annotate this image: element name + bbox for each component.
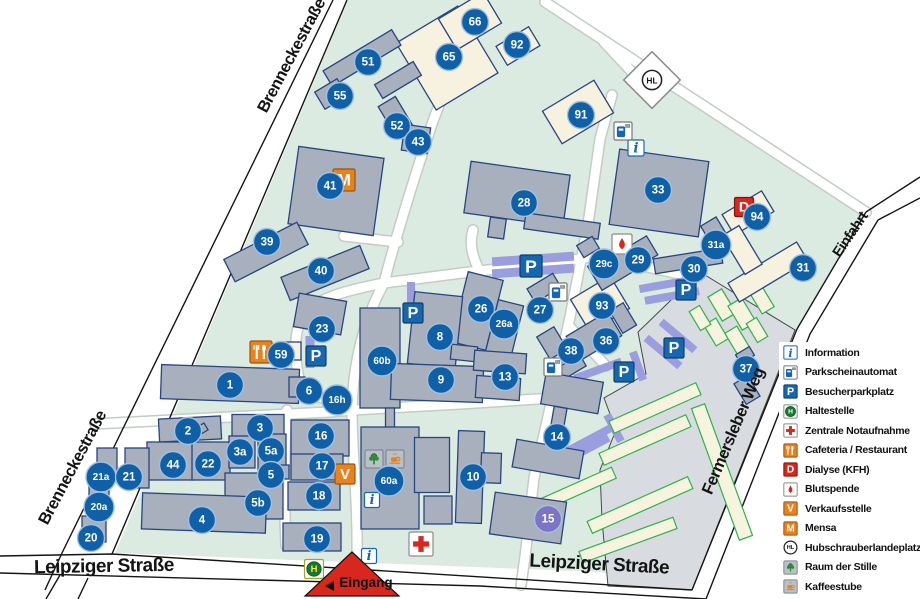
building-marker-26a: 26a [489, 309, 519, 339]
svg-text:HL: HL [787, 545, 795, 551]
svg-text:i: i [370, 493, 375, 508]
building-marker-17: 17 [309, 453, 336, 480]
svg-text:93: 93 [596, 301, 609, 313]
building-marker-5b: 5b [245, 490, 272, 517]
entrance-label: Eingang [339, 575, 392, 590]
legend-item-label: Mensa [805, 522, 836, 534]
building-marker-18: 18 [306, 483, 333, 510]
building-marker-10: 10 [460, 464, 487, 491]
svg-text:6: 6 [306, 386, 312, 398]
legend-item-label: Cafeteria / Restaurant [805, 444, 907, 456]
legend-item-verkaufsstelle: VVerkaufsstelle [783, 500, 920, 517]
cafeteria-icon [784, 443, 797, 456]
building-marker-20a: 20a [84, 492, 114, 522]
svg-text:26: 26 [475, 304, 488, 316]
svg-text:13: 13 [499, 372, 512, 384]
svg-text:21: 21 [123, 472, 136, 484]
building-marker-94: 94 [744, 204, 771, 231]
legend-item-information: iInformation [783, 344, 920, 361]
svg-text:51: 51 [362, 57, 375, 69]
legend-item-notaufnahme: Zentrale Notaufnahme [783, 422, 920, 439]
building-marker-39: 39 [254, 229, 281, 256]
building-marker-21a: 21a [86, 462, 116, 492]
svg-text:39: 39 [261, 237, 274, 249]
svg-text:18: 18 [313, 491, 326, 503]
besucherparkplatz-icon: P [784, 385, 797, 398]
building-marker-29: 29 [625, 247, 652, 274]
legend-panel: iInformationParkscheinautomatPBesucherpa… [779, 342, 920, 597]
raum-der-stille-icon [365, 450, 383, 468]
svg-text:D: D [787, 464, 794, 475]
svg-text:65: 65 [443, 52, 456, 64]
legend-item-label: Dialyse (KFH) [805, 464, 869, 476]
building-marker-29c: 29c [589, 249, 619, 279]
legend-item-label: Kaffeestube [805, 581, 862, 593]
svg-text:43: 43 [412, 137, 425, 149]
svg-text:28: 28 [518, 198, 531, 210]
legend-item-label: Verkaufsstelle [805, 503, 871, 515]
street-label: Leipziger Straße [34, 555, 174, 578]
mensa-icon: M [784, 521, 797, 534]
svg-text:17: 17 [316, 461, 329, 473]
svg-text:31a: 31a [708, 240, 725, 251]
svg-text:5: 5 [268, 470, 275, 482]
svg-text:92: 92 [511, 40, 524, 52]
cafeteria-icon [783, 443, 798, 458]
svg-text:20a: 20a [91, 502, 108, 513]
building-marker-8: 8 [427, 324, 454, 351]
svg-text:H: H [788, 408, 793, 415]
svg-text:2: 2 [185, 426, 191, 438]
building-marker-27: 27 [527, 297, 554, 324]
building-marker-31: 31 [790, 255, 817, 282]
building-marker-4: 4 [189, 507, 216, 534]
svg-text:3: 3 [257, 423, 263, 435]
legend-item-besucherparkplatz: PBesucherparkplatz [783, 383, 920, 400]
building-marker-15: 15 [535, 506, 562, 533]
svg-text:HL: HL [646, 76, 657, 86]
legend-item-hubschrauberlandeplatz: HLHubschrauberlandeplatz [783, 539, 920, 556]
information-icon: i [362, 549, 377, 564]
information-icon: i [784, 346, 797, 360]
building-marker-6: 6 [296, 378, 323, 405]
svg-text:i: i [788, 346, 792, 360]
svg-text:9: 9 [438, 375, 444, 387]
svg-text:29: 29 [632, 255, 645, 267]
building-marker-40: 40 [308, 258, 335, 285]
svg-text:29c: 29c [596, 259, 613, 270]
svg-text:V: V [787, 503, 794, 514]
besucherparkplatz-icon: P [783, 384, 798, 399]
svg-text:21a: 21a [93, 472, 110, 483]
building-marker-1: 1 [217, 372, 244, 399]
building-marker-60b: 60b [367, 346, 397, 376]
notaufnahme-icon [409, 532, 433, 556]
building-marker-2: 2 [175, 418, 202, 445]
svg-text:36: 36 [600, 336, 613, 348]
svg-text:60b: 60b [373, 356, 390, 367]
svg-text:5b: 5b [251, 498, 264, 510]
building-marker-92: 92 [504, 32, 531, 59]
building-marker-28: 28 [511, 190, 538, 217]
legend-item-label: Haltestelle [805, 405, 854, 417]
legend-item-haltestelle: HHaltestelle [783, 403, 920, 420]
dialyse-icon: D [783, 462, 798, 477]
svg-text:16h: 16h [328, 395, 345, 406]
svg-text:20: 20 [85, 533, 98, 545]
hubschrauberlandeplatz-icon: HL [642, 70, 661, 89]
building-marker-30: 30 [681, 256, 708, 283]
svg-text:P: P [669, 340, 680, 357]
raum-der-stille-icon [783, 560, 798, 575]
building-marker-22: 22 [195, 451, 222, 478]
building-marker-36: 36 [593, 328, 620, 355]
building-marker-55: 55 [327, 83, 354, 110]
besucherparkplatz-icon: P [520, 255, 542, 277]
svg-text:23: 23 [316, 324, 329, 336]
svg-text:19: 19 [311, 534, 324, 546]
svg-text:60a: 60a [381, 476, 398, 487]
information-icon: i [628, 140, 644, 156]
building-marker-93: 93 [589, 293, 616, 320]
building-marker-16: 16 [308, 423, 335, 450]
building-marker-91: 91 [568, 102, 595, 129]
hubschrauberlandeplatz-icon: HL [783, 540, 798, 555]
parkscheinautomat-icon [784, 365, 797, 378]
svg-text:38: 38 [565, 346, 578, 358]
building-marker-44: 44 [160, 452, 187, 479]
svg-text:P: P [525, 257, 537, 277]
legend-item-kaffeestube: Kaffeestube [783, 578, 920, 595]
blutspende-icon [783, 482, 798, 497]
svg-text:10: 10 [467, 472, 480, 484]
svg-text:44: 44 [167, 460, 180, 472]
kaffeestube-icon [783, 579, 798, 594]
legend-item-label: Blutspende [805, 483, 859, 495]
building-marker-65: 65 [436, 44, 463, 71]
building-marker-33: 33 [645, 177, 672, 204]
parkscheinautomat-icon [783, 365, 798, 380]
besucherparkplatz-icon: P [403, 303, 423, 323]
campus-map: MDVHHLiiiPPPPPP6692655155524391412833943… [0, 0, 920, 599]
svg-text:P: P [681, 282, 692, 299]
building-marker-14: 14 [544, 424, 571, 451]
building-shape [415, 438, 450, 493]
svg-text:59: 59 [275, 350, 288, 362]
legend-item-label: Hubschrauberlandeplatz [805, 542, 920, 554]
svg-text:P: P [311, 348, 322, 365]
legend-item-parkscheinautomat: Parkscheinautomat [783, 364, 920, 381]
legend-item-label: Zentrale Notaufnahme [805, 425, 910, 437]
legend-item-label: Raum der Stille [805, 561, 877, 573]
blutspende-icon [784, 482, 797, 495]
haltestelle-icon: H [784, 404, 797, 417]
building-marker-13: 13 [492, 364, 519, 391]
building-marker-51: 51 [355, 49, 382, 76]
information-icon: i [783, 345, 798, 360]
raum-der-stille-icon [784, 560, 797, 573]
svg-text:31: 31 [797, 263, 810, 275]
legend-item-raum-der-stille: Raum der Stille [783, 559, 920, 576]
svg-text:3a: 3a [234, 447, 247, 459]
kaffeestube-icon [386, 450, 404, 468]
building-marker-16h: 16h [322, 385, 352, 415]
svg-text:1: 1 [227, 380, 234, 392]
parkscheinautomat-icon [544, 358, 562, 376]
building-marker-60a: 60a [374, 466, 404, 496]
building-marker-31a: 31a [701, 230, 731, 260]
svg-text:5a: 5a [265, 446, 278, 458]
parkscheinautomat-icon [614, 122, 632, 140]
svg-text:4: 4 [199, 515, 206, 527]
besucherparkplatz-icon: P [306, 346, 326, 366]
building-marker-5: 5 [258, 462, 285, 489]
haltestelle-icon: H [305, 560, 324, 579]
verkaufsstelle-icon: V [784, 502, 797, 515]
notaufnahme-icon [783, 423, 798, 438]
svg-text:15: 15 [542, 514, 555, 526]
svg-text:66: 66 [469, 17, 482, 29]
svg-text:94: 94 [751, 212, 764, 224]
svg-text:55: 55 [334, 91, 347, 103]
verkaufsstelle-icon: V [335, 464, 355, 484]
information-icon: i [365, 493, 380, 508]
svg-text:i: i [633, 140, 638, 156]
svg-text:41: 41 [324, 181, 337, 193]
building-marker-43: 43 [405, 129, 432, 156]
svg-text:40: 40 [315, 266, 328, 278]
building-marker-38: 38 [558, 338, 585, 365]
haltestelle-icon: H [783, 404, 798, 419]
hubschrauberlandeplatz-icon: HL [784, 541, 797, 554]
mensa-icon: M [783, 521, 798, 536]
building-marker-21: 21 [116, 464, 143, 491]
building-marker-59: 59 [268, 342, 295, 369]
building-marker-19: 19 [304, 526, 331, 553]
svg-text:V: V [340, 466, 350, 483]
legend-item-cafeteria: Cafeteria / Restaurant [783, 442, 920, 459]
besucherparkplatz-icon: P [614, 362, 634, 382]
svg-text:52: 52 [391, 121, 404, 133]
svg-text:22: 22 [202, 459, 215, 471]
svg-text:16: 16 [315, 431, 328, 443]
building-marker-5a: 5a [258, 438, 285, 465]
building-marker-66: 66 [462, 9, 489, 36]
svg-text:P: P [408, 305, 419, 322]
building-marker-41: 41 [317, 173, 344, 200]
notaufnahme-icon [784, 424, 797, 437]
legend-item-label: Parkscheinautomat [805, 366, 897, 378]
legend-item-mensa: MMensa [783, 520, 920, 537]
legend-item-label: Besucherparkplatz [805, 386, 894, 398]
svg-text:P: P [787, 386, 794, 398]
svg-text:M: M [786, 523, 794, 534]
building-shape [424, 496, 452, 524]
parkscheinautomat-icon [549, 283, 567, 301]
verkaufsstelle-icon: V [783, 501, 798, 516]
building-marker-20: 20 [78, 525, 105, 552]
legend-item-label: Information [805, 347, 859, 359]
besucherparkplatz-icon: P [664, 338, 684, 358]
legend-item-dialyse: DDialyse (KFH) [783, 461, 920, 478]
svg-text:8: 8 [437, 332, 444, 344]
building-marker-9: 9 [428, 367, 455, 394]
svg-text:i: i [367, 549, 372, 564]
building-marker-23: 23 [309, 316, 336, 343]
legend-item-blutspende: Blutspende [783, 481, 920, 498]
building-marker-3a: 3a [227, 439, 254, 466]
building-shape [488, 217, 507, 239]
kaffeestube-icon [784, 580, 797, 593]
svg-text:H: H [311, 564, 318, 575]
svg-text:27: 27 [534, 305, 547, 317]
svg-text:P: P [619, 364, 630, 381]
svg-text:14: 14 [551, 432, 564, 444]
dialyse-icon: D [784, 463, 797, 476]
svg-text:33: 33 [652, 185, 665, 197]
svg-text:30: 30 [688, 264, 701, 276]
svg-text:26a: 26a [496, 319, 513, 330]
svg-text:91: 91 [575, 110, 588, 122]
